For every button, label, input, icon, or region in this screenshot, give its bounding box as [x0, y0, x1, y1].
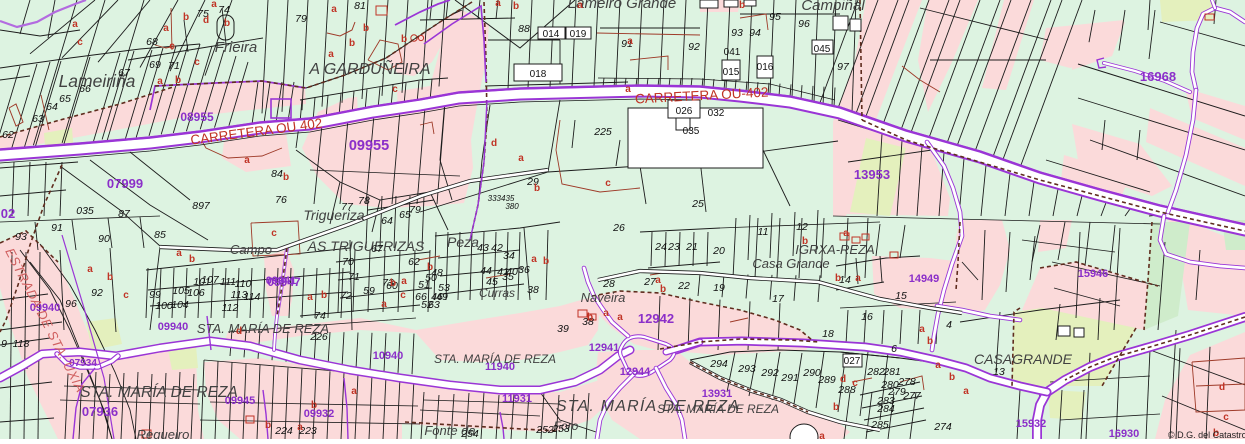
svg-text:96: 96 [65, 298, 77, 310]
svg-text:74: 74 [218, 4, 230, 16]
svg-text:b: b [949, 372, 955, 383]
svg-text:46: 46 [431, 291, 443, 303]
svg-text:a: a [307, 292, 313, 303]
svg-text:035: 035 [683, 126, 700, 137]
svg-text:253: 253 [551, 423, 570, 435]
svg-text:16930: 16930 [1109, 428, 1140, 439]
svg-text:224: 224 [274, 425, 293, 437]
svg-text:Trigueriza: Trigueriza [303, 207, 364, 223]
svg-text:CASAGRANDE: CASAGRANDE [974, 351, 1073, 367]
svg-text:254: 254 [460, 428, 479, 439]
svg-text:294: 294 [709, 358, 728, 370]
svg-text:b: b [587, 312, 593, 323]
svg-text:d: d [1219, 382, 1225, 393]
svg-text:97: 97 [837, 61, 850, 73]
svg-text:88: 88 [518, 23, 530, 35]
svg-text:c: c [852, 378, 858, 389]
svg-text:b: b [427, 262, 433, 273]
svg-text:67: 67 [371, 243, 384, 255]
svg-text:4: 4 [946, 319, 952, 331]
svg-text:36: 36 [518, 264, 530, 276]
svg-text:76: 76 [275, 194, 287, 206]
svg-text:Frieira: Frieira [215, 39, 258, 56]
svg-text:92: 92 [688, 41, 700, 53]
svg-text:a: a [577, 0, 583, 11]
svg-text:b: b [927, 336, 933, 347]
svg-text:111: 111 [220, 276, 236, 288]
svg-text:a: a [163, 23, 169, 34]
svg-text:c: c [123, 290, 129, 301]
svg-text:a: a [87, 264, 93, 275]
svg-text:39: 39 [557, 323, 569, 335]
svg-text:032: 032 [708, 108, 725, 119]
svg-text:a: a [401, 276, 407, 287]
svg-text:b: b [513, 1, 519, 12]
svg-text:18: 18 [822, 328, 834, 340]
svg-text:07936: 07936 [82, 404, 118, 419]
svg-text:92: 92 [91, 287, 103, 299]
svg-text:62: 62 [2, 129, 14, 141]
svg-text:© D.G. del Catastro: © D.G. del Catastro [1168, 430, 1245, 439]
svg-text:16: 16 [861, 311, 873, 323]
svg-text:12: 12 [796, 221, 808, 233]
svg-text:26: 26 [612, 222, 625, 234]
svg-text:62: 62 [408, 256, 420, 268]
svg-text:59: 59 [363, 285, 375, 297]
svg-text:282: 282 [866, 366, 885, 378]
svg-text:Campo: Campo [230, 242, 272, 257]
svg-text:94: 94 [749, 27, 761, 39]
svg-text:a: a [381, 299, 387, 310]
svg-text:293: 293 [737, 363, 756, 375]
svg-text:b: b [224, 18, 230, 29]
svg-text:70: 70 [342, 256, 354, 268]
svg-text:a: a [518, 153, 524, 164]
svg-text:a: a [157, 76, 163, 87]
svg-text:016: 016 [757, 62, 774, 73]
svg-text:a: a [495, 0, 501, 9]
svg-text:79: 79 [409, 204, 421, 216]
svg-text:285: 285 [870, 419, 889, 431]
svg-text:19: 19 [713, 282, 725, 294]
svg-text:b: b [390, 278, 396, 289]
svg-text:Naveira: Naveira [581, 290, 626, 305]
svg-text:c: c [605, 178, 611, 189]
svg-text:b: b [189, 254, 195, 265]
svg-text:STA. MARÍA DE REZA: STA. MARÍA DE REZA [80, 384, 238, 401]
svg-text:85: 85 [154, 229, 166, 241]
svg-text:6: 6 [891, 343, 897, 355]
svg-text:72: 72 [340, 290, 352, 302]
svg-text:Casa Grande: Casa Grande [752, 256, 829, 271]
svg-text:Lameiro Grande: Lameiro Grande [568, 0, 676, 12]
svg-text:84: 84 [271, 168, 283, 180]
svg-text:a: a [617, 312, 623, 323]
svg-text:291: 291 [780, 372, 799, 384]
svg-text:018: 018 [530, 69, 547, 80]
svg-text:a: a [627, 36, 633, 47]
svg-text:9: 9 [1, 338, 7, 350]
svg-text:b: b [401, 34, 407, 45]
svg-text:11: 11 [758, 226, 769, 238]
svg-text:07999: 07999 [107, 176, 143, 191]
svg-text:Regueiro: Regueiro [137, 427, 190, 439]
svg-text:a: a [531, 254, 537, 265]
svg-text:045: 045 [814, 44, 831, 55]
svg-text:10940: 10940 [373, 350, 404, 362]
svg-text:b: b [802, 236, 808, 247]
svg-text:118: 118 [13, 338, 30, 350]
svg-text:a: a [297, 422, 303, 433]
svg-text:b: b [321, 290, 327, 301]
svg-text:68: 68 [146, 36, 158, 48]
svg-text:d: d [840, 374, 846, 385]
svg-text:A GARDUÑEIRA: A GARDUÑEIRA [308, 59, 430, 78]
svg-text:a: a [935, 360, 941, 371]
svg-text:24: 24 [654, 241, 667, 253]
svg-text:STA. MARÍA DE REZA: STA. MARÍA DE REZA [434, 351, 556, 366]
svg-text:027: 027 [844, 356, 861, 367]
svg-text:c: c [1223, 412, 1229, 423]
svg-text:c: c [194, 57, 200, 68]
svg-text:64: 64 [46, 101, 58, 113]
svg-text:284: 284 [876, 403, 895, 415]
svg-text:52: 52 [421, 299, 433, 311]
svg-text:15: 15 [895, 290, 907, 302]
svg-text:278: 278 [897, 376, 916, 388]
svg-text:c: c [77, 37, 83, 48]
svg-text:71: 71 [168, 60, 180, 72]
svg-text:289: 289 [817, 374, 836, 386]
svg-text:226: 226 [309, 331, 328, 343]
svg-text:79: 79 [295, 13, 307, 25]
svg-text:91: 91 [51, 222, 63, 234]
svg-text:09940: 09940 [158, 321, 189, 333]
svg-text:17: 17 [772, 293, 785, 305]
svg-text:21: 21 [685, 241, 698, 253]
svg-text:95: 95 [769, 11, 781, 23]
svg-text:a: a [331, 4, 337, 15]
svg-text:d: d [236, 326, 242, 337]
svg-text:Campiñal: Campiñal [801, 0, 865, 14]
svg-text:b: b [833, 402, 839, 413]
svg-text:c: c [392, 84, 398, 95]
svg-text:78: 78 [358, 195, 370, 207]
svg-text:c: c [169, 41, 175, 52]
svg-text:38: 38 [527, 284, 539, 296]
svg-text:015: 015 [723, 67, 740, 78]
svg-text:106: 106 [187, 287, 205, 299]
svg-text:25: 25 [691, 198, 704, 210]
svg-text:026: 026 [676, 106, 693, 117]
svg-text:74: 74 [314, 310, 326, 322]
svg-text:041: 041 [724, 47, 741, 58]
svg-text:87: 87 [118, 208, 131, 220]
svg-text:40: 40 [506, 266, 518, 278]
svg-text:71: 71 [348, 271, 360, 283]
svg-text:292: 292 [760, 367, 779, 379]
svg-text:93: 93 [731, 27, 743, 39]
svg-text:90: 90 [98, 233, 110, 245]
svg-text:Curras: Curras [479, 286, 515, 300]
svg-text:274: 274 [933, 421, 952, 433]
svg-text:11931: 11931 [502, 393, 532, 405]
svg-text:81: 81 [354, 0, 366, 12]
svg-text:b: b [660, 284, 666, 295]
svg-text:22: 22 [677, 280, 690, 292]
svg-text:a: a [351, 386, 357, 397]
svg-text:380: 380 [505, 202, 519, 211]
svg-text:a: a [919, 324, 925, 335]
svg-text:23: 23 [667, 241, 680, 253]
svg-text:15932: 15932 [1016, 418, 1047, 430]
svg-text:b: b [183, 12, 189, 23]
svg-text:77: 77 [341, 201, 354, 213]
svg-text:Peza: Peza [447, 234, 479, 250]
svg-text:66: 66 [79, 83, 91, 95]
svg-text:107: 107 [201, 274, 220, 286]
svg-text:09932: 09932 [304, 408, 335, 420]
svg-text:16968: 16968 [1140, 69, 1176, 84]
svg-text:93: 93 [15, 231, 27, 243]
svg-text:b: b [739, 0, 745, 11]
svg-text:65: 65 [59, 93, 71, 105]
svg-text:b: b [534, 183, 540, 194]
svg-text:104: 104 [171, 299, 189, 311]
svg-text:12941: 12941 [589, 342, 620, 354]
svg-text:15946: 15946 [1078, 268, 1109, 280]
svg-text:b: b [107, 272, 113, 283]
svg-text:035: 035 [76, 205, 94, 217]
svg-text:AS TRIGUERIZAS: AS TRIGUERIZAS [307, 238, 425, 254]
svg-text:d: d [203, 15, 209, 26]
svg-text:08955: 08955 [180, 110, 214, 124]
svg-text:c: c [271, 228, 277, 239]
svg-text:64: 64 [381, 215, 393, 227]
svg-text:13: 13 [993, 366, 1005, 378]
svg-text:02: 02 [1, 206, 15, 221]
svg-text:51: 51 [418, 279, 430, 291]
svg-text:67: 67 [118, 67, 131, 79]
svg-text:12942: 12942 [638, 311, 674, 326]
svg-text:a: a [211, 0, 217, 10]
svg-text:a: a [625, 84, 631, 95]
svg-text:112: 112 [222, 302, 239, 314]
svg-text:43: 43 [477, 242, 489, 254]
svg-text:14949: 14949 [909, 273, 940, 285]
svg-text:a: a [963, 386, 969, 397]
svg-text:b: b [283, 172, 289, 183]
svg-text:d: d [491, 138, 497, 149]
svg-text:45: 45 [486, 276, 498, 288]
svg-text:b: b [265, 420, 271, 431]
svg-text:12944: 12944 [620, 366, 651, 378]
svg-text:a: a [843, 228, 849, 239]
svg-text:b: b [175, 75, 181, 86]
svg-text:a: a [176, 248, 182, 259]
svg-text:STA. MARÍA DE REZA: STA. MARÍA DE REZA [556, 396, 740, 415]
svg-text:09955: 09955 [349, 138, 389, 154]
svg-text:09941: 09941 [266, 275, 297, 287]
svg-text:b: b [363, 23, 369, 34]
svg-text:225: 225 [593, 126, 612, 138]
svg-text:34: 34 [503, 250, 515, 262]
svg-text:42: 42 [491, 242, 503, 254]
svg-text:897: 897 [192, 200, 211, 212]
svg-text:63: 63 [32, 113, 44, 125]
svg-text:96: 96 [798, 18, 810, 30]
svg-text:252: 252 [535, 424, 554, 436]
svg-text:114: 114 [244, 291, 261, 303]
svg-text:019: 019 [570, 29, 587, 40]
svg-text:b: b [543, 256, 549, 267]
svg-text:20: 20 [712, 245, 725, 257]
svg-text:a: a [819, 431, 825, 439]
svg-text:b: b [311, 400, 317, 411]
svg-text:a: a [855, 273, 861, 284]
svg-text:c: c [400, 290, 406, 301]
svg-text:13953: 13953 [854, 167, 890, 182]
svg-text:b: b [835, 273, 841, 284]
svg-text:69: 69 [149, 59, 161, 71]
svg-text:014: 014 [543, 29, 560, 40]
svg-text:a: a [328, 49, 334, 60]
svg-text:a: a [603, 308, 609, 319]
svg-text:b: b [349, 38, 355, 49]
svg-text:a: a [72, 19, 78, 30]
svg-text:a: a [244, 155, 250, 166]
svg-text:277: 277 [902, 390, 922, 402]
svg-text:28: 28 [602, 278, 615, 290]
